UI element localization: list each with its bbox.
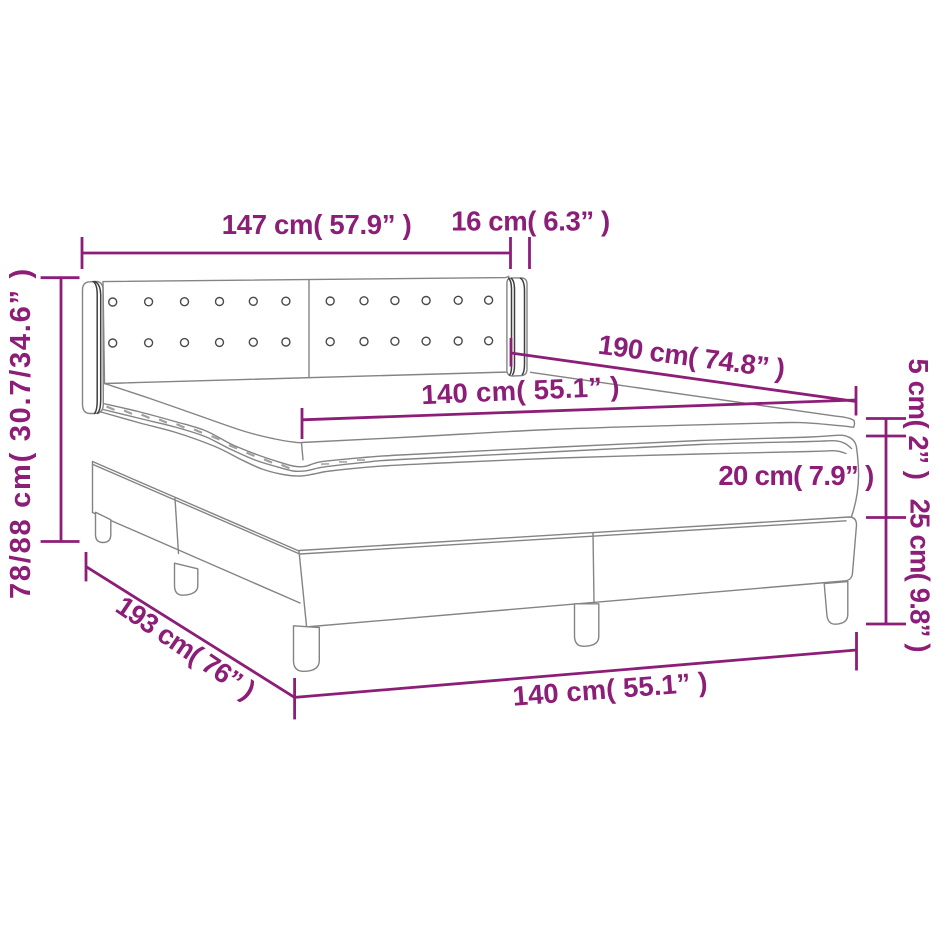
svg-text:147 cm( 57.9” ): 147 cm( 57.9” ): [222, 209, 412, 240]
svg-text:5 cm( 2” ): 5 cm( 2” ): [903, 359, 934, 480]
svg-text:25 cm( 9.8” ): 25 cm( 9.8” ): [905, 499, 936, 652]
svg-text:16 cm( 6.3” ): 16 cm( 6.3” ): [451, 206, 609, 237]
svg-text:78/88 cm( 30.7/34.6” ): 78/88 cm( 30.7/34.6” ): [5, 267, 37, 599]
svg-text:20 cm( 7.9” ): 20 cm( 7.9” ): [718, 460, 873, 491]
